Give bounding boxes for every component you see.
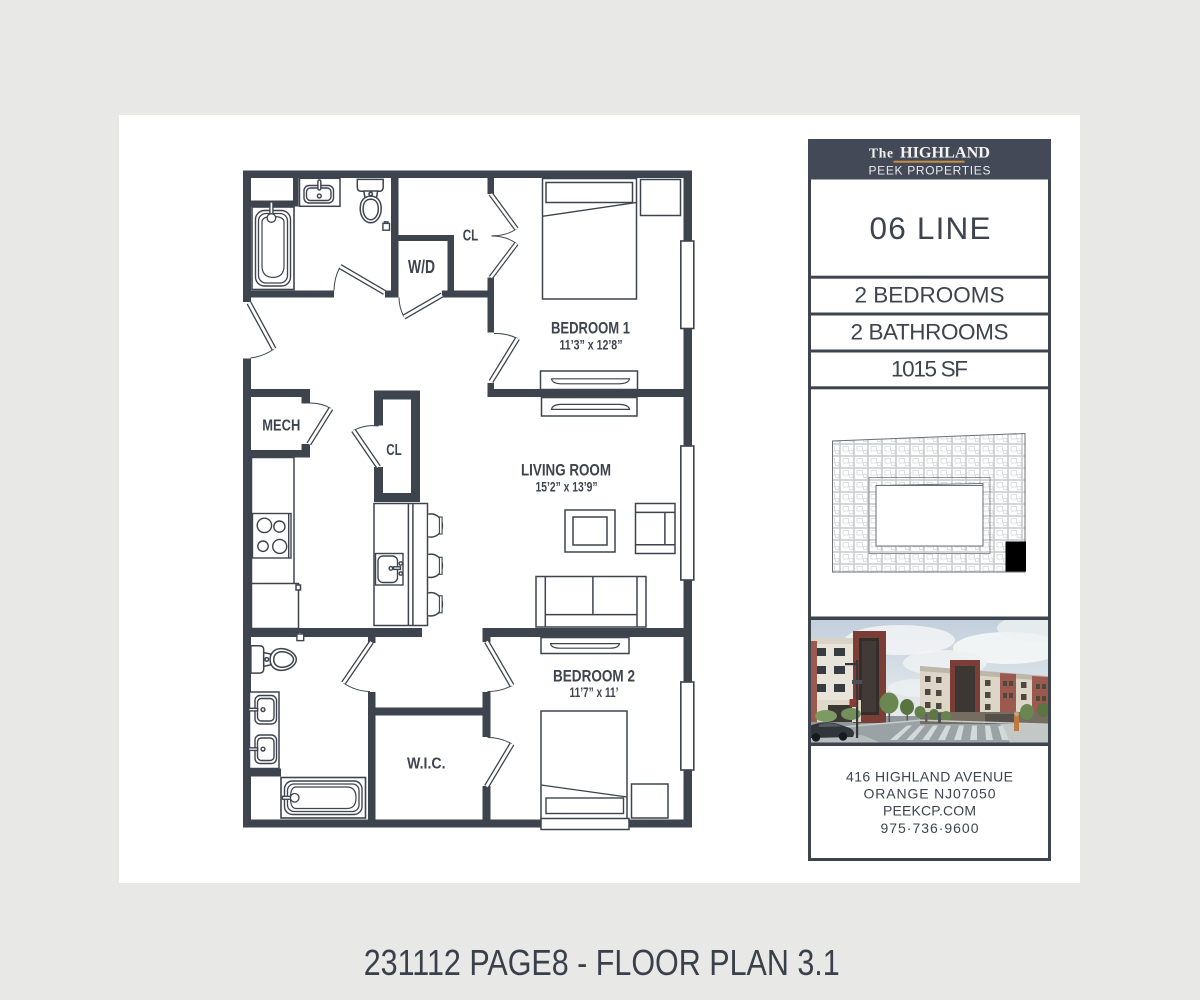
svg-text:1015 SF: 1015 SF xyxy=(891,357,968,382)
svg-text:11’3” x 12’8”: 11’3” x 12’8” xyxy=(560,338,623,353)
svg-text:BEDROOM 2: BEDROOM 2 xyxy=(553,667,635,686)
svg-text:HIGHLAND: HIGHLAND xyxy=(900,145,990,162)
svg-text:11’7” x 11’: 11’7” x 11’ xyxy=(570,685,619,700)
svg-text:W/D: W/D xyxy=(408,257,435,277)
svg-text:975·736·9600: 975·736·9600 xyxy=(881,820,979,836)
svg-text:15’2” x 13’9”: 15’2” x 13’9” xyxy=(536,480,598,495)
svg-text:CL: CL xyxy=(386,442,402,459)
svg-text:W.I.C.: W.I.C. xyxy=(407,756,446,773)
svg-text:06 LINE: 06 LINE xyxy=(870,210,991,246)
svg-text:MECH: MECH xyxy=(262,418,300,435)
svg-text:231112 PAGE8 - FLOOR PLAN 3.1: 231112 PAGE8 - FLOOR PLAN 3.1 xyxy=(364,942,840,983)
svg-text:The: The xyxy=(869,146,893,161)
svg-text:PEEK PROPERTIES: PEEK PROPERTIES xyxy=(869,164,991,178)
svg-text:PEEKCP.COM: PEEKCP.COM xyxy=(883,803,976,819)
svg-text:LIVING ROOM: LIVING ROOM xyxy=(521,461,611,480)
svg-text:2 BEDROOMS: 2 BEDROOMS xyxy=(855,283,1005,308)
svg-text:CL: CL xyxy=(463,228,479,245)
svg-text:BEDROOM 1: BEDROOM 1 xyxy=(551,319,630,338)
svg-text:416 HIGHLAND AVENUE: 416 HIGHLAND AVENUE xyxy=(846,769,1013,785)
svg-text:2 BATHROOMS: 2 BATHROOMS xyxy=(851,320,1009,345)
svg-text:ORANGE NJ07050: ORANGE NJ07050 xyxy=(864,786,996,802)
